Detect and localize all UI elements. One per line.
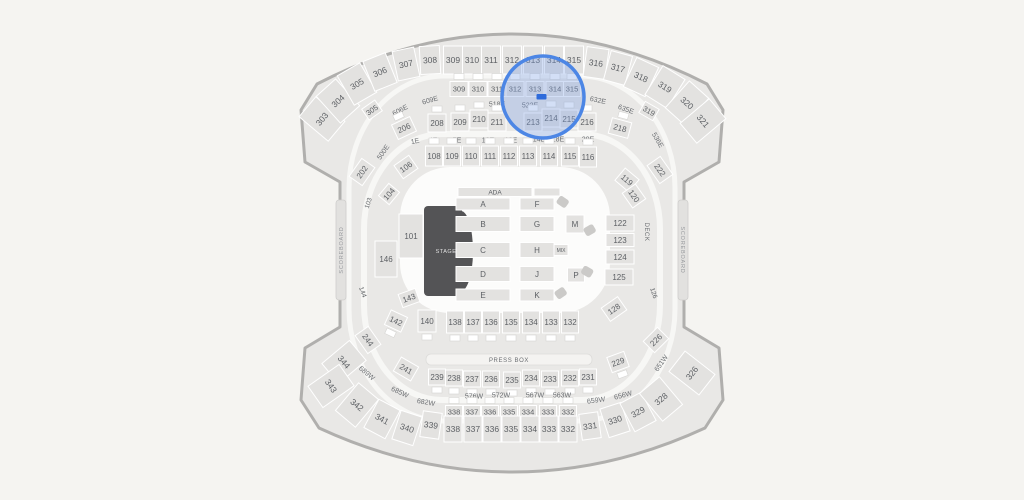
section-label: 112 — [503, 152, 516, 161]
section-label: 116 — [582, 153, 595, 162]
section-label: 336 — [485, 424, 499, 434]
floor-section-label: D — [480, 270, 486, 279]
portal-entrance — [466, 138, 476, 144]
section-label: 132 — [563, 318, 577, 327]
deck-label: DECK — [643, 223, 649, 242]
portal-entrance — [565, 138, 575, 144]
floor-section-label: E — [480, 291, 485, 300]
portal-entrance — [526, 335, 536, 341]
floor-strip — [534, 188, 560, 196]
portal-entrance — [429, 138, 439, 144]
portal-entrance — [473, 74, 483, 80]
floor-section-label: J — [535, 270, 539, 279]
section-label: 334 — [523, 424, 537, 434]
section-123[interactable]: 123 — [606, 234, 634, 247]
portal-entrance — [504, 398, 514, 404]
portal-entrance — [523, 398, 533, 404]
section-label: 115 — [564, 152, 577, 161]
section-label: 109 — [445, 152, 459, 161]
portal-entrance — [450, 335, 460, 341]
floor-section-g[interactable]: G — [520, 217, 554, 232]
section-label: 335 — [504, 424, 518, 434]
section-label: 338 — [446, 424, 460, 434]
portal-entrance — [565, 335, 575, 341]
section-label: 338 — [448, 408, 461, 417]
floor-section-a[interactable]: A — [456, 198, 510, 210]
section-label: 231 — [581, 373, 595, 382]
portal-entrance — [504, 138, 514, 144]
section-label: 235 — [505, 376, 519, 385]
section-label: 232 — [563, 374, 577, 383]
section-label: 310 — [465, 55, 479, 65]
section-124[interactable]: 124 — [606, 250, 634, 264]
portal-entrance — [523, 138, 533, 144]
section-label: 333 — [542, 424, 556, 434]
portal-entrance — [449, 388, 459, 394]
section-label: 101 — [404, 232, 418, 241]
section-label: 135 — [504, 318, 518, 327]
section-label: 133 — [544, 318, 558, 327]
press-box: PRESS BOX — [426, 354, 592, 365]
section-label: 123 — [613, 236, 627, 245]
section-label: 311 — [484, 55, 498, 65]
section-332[interactable]: 332 — [559, 416, 577, 442]
section-label: 111 — [484, 152, 497, 161]
section-label: 337 — [466, 424, 480, 434]
section-122[interactable]: 122 — [606, 215, 634, 231]
floor-section-label: P — [573, 271, 578, 280]
section-308[interactable]: 308 — [419, 45, 440, 74]
floor-section-c[interactable]: C — [456, 243, 510, 258]
press-box-label: PRESS BOX — [489, 358, 529, 364]
stadium-seating-map: SCOREBOARD SCOREBOARD DECK PRESS BOX STA… — [0, 0, 1024, 500]
portal-entrance — [506, 335, 516, 341]
section-label: 337 — [466, 408, 479, 417]
portal-entrance — [432, 106, 442, 112]
section-label: 334 — [522, 408, 535, 417]
portal-entrance — [467, 398, 477, 404]
section-label: 336 — [484, 408, 497, 417]
section-label: 233 — [543, 375, 557, 384]
section-label: 332 — [562, 408, 575, 417]
floor-section-ada[interactable]: ADA — [458, 188, 532, 197]
section-label: 124 — [613, 253, 627, 262]
section-label: 234 — [524, 374, 538, 383]
section-309[interactable]: 309 — [444, 46, 463, 74]
portal-entrance — [468, 335, 478, 341]
section-label: 108 — [427, 152, 441, 161]
section-338[interactable]: 338 — [444, 416, 462, 442]
section-label: 208 — [430, 119, 444, 128]
scoreboard-left: SCOREBOARD — [336, 200, 346, 300]
portal-entrance — [474, 102, 484, 108]
section-101[interactable]: 101 — [399, 214, 423, 258]
scoreboard-right-label: SCOREBOARD — [679, 226, 685, 273]
section-label: 122 — [613, 219, 627, 228]
portal-entrance — [455, 105, 465, 111]
portal-entrance — [449, 398, 459, 404]
section-label: 335 — [503, 408, 516, 417]
floor-section-label: M — [572, 220, 579, 229]
section-label: 332 — [561, 424, 575, 434]
section-310[interactable]: 310 — [463, 46, 482, 74]
section-125[interactable]: 125 — [605, 269, 633, 285]
portal-entrance — [486, 335, 496, 341]
section-label: 211 — [491, 118, 504, 127]
stage-label: STAGE — [436, 249, 457, 255]
section-337[interactable]: 337 — [464, 416, 482, 442]
section-label: 138 — [448, 318, 462, 327]
portal-entrance — [485, 138, 495, 144]
portal-entrance — [447, 138, 457, 144]
section-label: 125 — [612, 273, 626, 282]
section-label: 140 — [420, 317, 434, 326]
portal-entrance — [485, 398, 495, 404]
section-331[interactable]: 331 — [579, 412, 601, 440]
section-label: 216 — [580, 118, 594, 127]
section-label: 113 — [522, 152, 535, 161]
scoreboard-right: SCOREBOARD — [678, 200, 688, 300]
section-label: 137 — [466, 318, 480, 327]
section-label: 309 — [453, 85, 466, 94]
section-label: 331 — [582, 420, 598, 432]
floor-section-label: ADA — [488, 189, 502, 196]
portal-entrance — [422, 334, 432, 340]
floor-section-label: MIX — [557, 248, 567, 254]
section-label: 114 — [543, 152, 556, 161]
section-label: 239 — [430, 373, 444, 382]
section-label: 236 — [484, 375, 498, 384]
scoreboard-left-label: SCOREBOARD — [339, 226, 345, 273]
floor-section-b[interactable]: B — [456, 217, 510, 232]
selected-seat-marker[interactable] — [537, 94, 547, 100]
section-label: 136 — [484, 318, 498, 327]
floor-section-label: H — [534, 246, 540, 255]
section-336[interactable]: 336 — [483, 416, 501, 442]
section-335[interactable]: 335 — [502, 416, 520, 442]
section-333[interactable]: 333 — [540, 416, 558, 442]
floor-section-label: A — [480, 200, 486, 209]
portal-entrance — [432, 387, 442, 393]
section-label: 316 — [588, 57, 604, 69]
section-label: 309 — [446, 55, 460, 65]
section-label: 210 — [472, 115, 486, 124]
floor-section-label: G — [534, 220, 540, 229]
section-label: 209 — [453, 118, 467, 127]
section-label: 238 — [447, 374, 461, 383]
section-label: 310 — [472, 85, 485, 94]
portal-entrance — [563, 398, 573, 404]
floor-section-d[interactable]: D — [456, 267, 510, 282]
section-311[interactable]: 311 — [482, 46, 501, 74]
section-label: 134 — [524, 318, 538, 327]
portal-entrance — [583, 387, 593, 393]
floor-section-f[interactable]: F — [520, 198, 554, 210]
floor-section-k[interactable]: K — [520, 289, 554, 301]
floor-section-mix[interactable]: MIX — [554, 245, 568, 256]
floor-section-label: F — [535, 200, 540, 209]
section-label: 333 — [542, 408, 555, 417]
section-339[interactable]: 339 — [420, 411, 442, 439]
floor-section-j[interactable]: J — [520, 267, 554, 282]
floor-section-label: K — [534, 291, 540, 300]
section-label: 237 — [465, 375, 479, 384]
floor-section-label: C — [480, 246, 486, 255]
section-334[interactable]: 334 — [521, 416, 539, 442]
floor-section-m[interactable]: M — [566, 215, 584, 233]
section-label: 308 — [423, 55, 438, 66]
portal-entrance — [492, 74, 502, 80]
portal-entrance — [454, 74, 464, 80]
section-label: 110 — [465, 152, 478, 161]
floor-section-h[interactable]: H — [520, 243, 554, 258]
portal-entrance — [546, 335, 556, 341]
floor-section-label: B — [480, 220, 485, 229]
portal-entrance — [543, 398, 553, 404]
floor-section-e[interactable]: E — [456, 289, 510, 301]
section-146[interactable]: 146 — [375, 241, 397, 277]
section-label: 339 — [423, 419, 439, 431]
portal-entrance — [583, 139, 593, 145]
portal-entrance — [492, 105, 502, 111]
section-label: 146 — [379, 255, 393, 264]
